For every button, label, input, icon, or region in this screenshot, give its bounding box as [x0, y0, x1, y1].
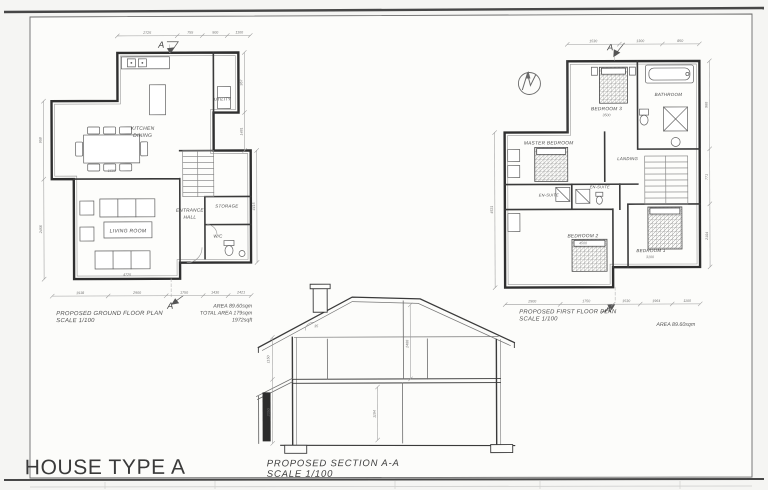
- toilet-cistern-icon: [640, 109, 649, 115]
- dining-table: [84, 135, 140, 163]
- toilet-icon: [596, 196, 602, 204]
- toilet-cistern-icon: [224, 241, 234, 246]
- room-label-hall: HALL: [184, 215, 197, 220]
- room-label-entrance: ENTRANCE: [176, 208, 204, 213]
- pillow: [537, 148, 566, 154]
- bathtub-inner: [649, 68, 690, 80]
- dim-label: 960: [705, 102, 709, 108]
- dim-label: 1430: [211, 291, 219, 295]
- bath-tap-icon: [686, 72, 689, 75]
- dim-label: 2456: [39, 225, 43, 234]
- foundation-pad: [285, 445, 307, 453]
- titleblock-hint-line: [30, 486, 752, 487]
- gf-plan-title: PROPOSED GROUND FLOOR PLAN: [56, 311, 163, 317]
- dim-label: 4531: [490, 206, 494, 214]
- pillow: [650, 208, 680, 214]
- dining-chair: [76, 142, 83, 156]
- section-marker-a: A: [157, 40, 164, 50]
- room-label-landing: LANDING: [617, 156, 638, 161]
- hob-dot-icon: [130, 62, 132, 64]
- dining-chair: [88, 164, 100, 171]
- room-label-bedroom2: BEDROOM 2: [567, 233, 598, 239]
- armchair: [80, 201, 94, 215]
- dining-chair: [120, 164, 132, 171]
- side-table: [629, 67, 635, 75]
- dim-label: 2900: [132, 291, 141, 295]
- room-label-storage: STORAGE: [215, 204, 238, 209]
- sofa: [100, 199, 155, 217]
- ff-area-note: AREA 89.60sqm: [655, 322, 696, 328]
- dim-label: 957: [239, 78, 243, 85]
- gf-area-sqft-note: 1972sqft: [232, 317, 253, 323]
- scanned-drawing-page: A A 2725 755 900 1100 1918 2900 1750 143…: [0, 0, 768, 490]
- dining-chair: [88, 127, 100, 134]
- drawing-sheet-svg: A A 2725 755 900 1100 1918 2900 1750 143…: [0, 0, 768, 490]
- wardrobe: [508, 166, 520, 178]
- armchair: [80, 227, 94, 241]
- dim-label: 2421: [236, 290, 245, 294]
- dim-label: 4725: [123, 273, 131, 277]
- titleblock-hint-ticks: [105, 481, 680, 489]
- room-label-kitchen: KITCHEN: [131, 126, 155, 132]
- dim-label: 1750: [180, 291, 188, 295]
- ff-plan-scale: SCALE 1/100: [519, 316, 558, 322]
- kitchen-island: [149, 85, 165, 115]
- dim-label: 2725: [142, 31, 151, 35]
- chimney: [310, 284, 330, 312]
- gf-plan-scale: SCALE 1/100: [56, 318, 95, 324]
- wardrobe: [508, 214, 520, 232]
- section-marker-a: A: [166, 301, 173, 311]
- dim-label: 900: [212, 31, 218, 35]
- sofa: [95, 251, 150, 269]
- section-title: PROPOSED SECTION A-A: [267, 458, 400, 469]
- dim-label: 771: [705, 174, 709, 180]
- dim-label: 958: [39, 137, 43, 143]
- dining-chair: [141, 142, 148, 156]
- toilet-cistern-icon: [596, 192, 603, 196]
- toilet-icon: [225, 246, 233, 256]
- room-label-wc: W/C: [213, 234, 223, 239]
- gf-area-note: AREA 89.60sqm: [212, 303, 253, 309]
- room-label-utility: UTILITY: [214, 97, 231, 102]
- dim-label: 1481: [240, 127, 244, 135]
- room-label-bedroom3: BEDROOM 3: [591, 106, 622, 112]
- dim-label: 1194: [373, 410, 377, 418]
- dim-label: 4500: [579, 241, 587, 245]
- dining-chair: [104, 127, 116, 134]
- room-label-dining: DINING: [133, 133, 152, 139]
- page-bottom-edge: [4, 479, 764, 480]
- dim-label: 1150: [266, 356, 270, 364]
- dim-label: 4415: [252, 202, 256, 210]
- dim-label: 1530: [622, 299, 630, 303]
- chimney-cap: [310, 284, 330, 289]
- gf-total-area-note: TOTAL AREA 179sqm: [200, 310, 253, 316]
- sheet-title: HOUSE TYPE A: [25, 456, 186, 480]
- dim-label: 3500: [603, 113, 611, 117]
- room-label-living: LIVING ROOM: [110, 228, 147, 234]
- dim-label: 1600: [108, 169, 116, 173]
- dim-label: 1750: [582, 299, 590, 303]
- dim-label: 2900: [527, 299, 536, 303]
- dim-label: 1100: [683, 299, 691, 303]
- toilet-icon: [640, 115, 648, 125]
- room-label-bathroom: BATHROOM: [655, 92, 683, 97]
- dim-label: 2350: [267, 408, 271, 417]
- ff-plan-title: PROPOSED FIRST FLOOR PLAN: [519, 309, 617, 315]
- basin-icon: [671, 137, 680, 146]
- room-label-bedroom1: BEDROOM 1: [636, 248, 666, 253]
- room-label-master-bedroom: MASTER BEDROOM: [524, 140, 574, 146]
- dim-label: 1530: [589, 39, 597, 43]
- wardrobe: [508, 150, 520, 162]
- roof-angle-label: 35: [314, 324, 318, 328]
- room-label-ensuite-right: EN-SUITE: [590, 184, 610, 189]
- dim-label: 2104: [705, 232, 709, 241]
- chimney-stack: [313, 288, 327, 312]
- dim-label: 2400: [405, 340, 409, 349]
- section-scale: SCALE 1/100: [267, 469, 333, 480]
- side-table: [591, 67, 597, 75]
- dim-label: 850: [677, 39, 683, 43]
- page-top-edge: [4, 8, 764, 12]
- dim-label: 1100: [235, 30, 243, 34]
- pillow: [601, 68, 625, 74]
- dim-label: 1918: [76, 291, 84, 295]
- foundation-pad: [491, 445, 513, 453]
- sink-dot-icon: [141, 62, 143, 64]
- dim-label: 1300: [636, 39, 644, 43]
- basin-icon: [239, 250, 245, 256]
- dim-label: 1964: [652, 299, 660, 303]
- dim-label: 3100: [646, 255, 654, 259]
- dim-label: 755: [187, 31, 193, 35]
- section-marker-a: A: [606, 42, 613, 52]
- room-label-ensuite-left: EN-SUITE: [539, 192, 559, 197]
